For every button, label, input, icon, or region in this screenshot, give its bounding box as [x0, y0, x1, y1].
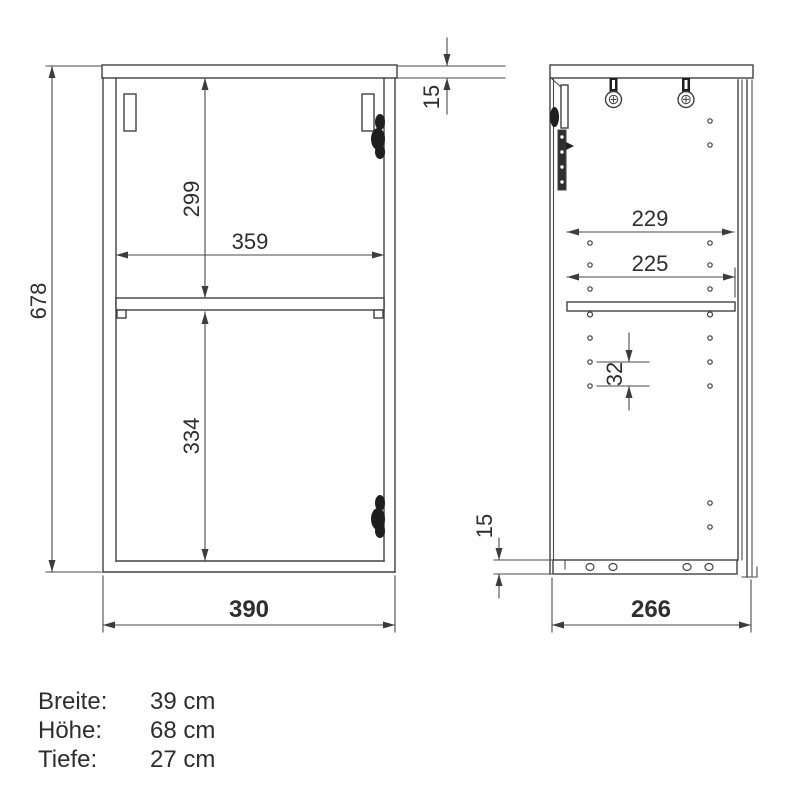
shelf-support-left [117, 310, 126, 318]
dim-label-299: 299 [179, 181, 204, 218]
spec-value-width: 39 cm [150, 687, 215, 716]
arrowhead-down [49, 560, 56, 572]
dim-label-266: 266 [631, 596, 671, 623]
dim-label-334: 334 [179, 418, 204, 455]
dim-side-upper-depth: 229 [567, 206, 734, 236]
spec-row-depth: Tiefe:27 cm [38, 745, 215, 774]
arrowhead-up [444, 78, 451, 90]
drill-hole [708, 501, 712, 505]
dim-label-15-bottom: 15 [472, 514, 497, 538]
dim-side-bottom-thickness: 15 [472, 514, 553, 598]
dim-label-390: 390 [229, 596, 269, 623]
arrowhead-right [739, 622, 751, 629]
rail-slide [561, 85, 568, 128]
spec-label-depth: Tiefe: [38, 745, 150, 774]
arrowhead-down [202, 286, 209, 298]
dim-front-height: 678 [26, 66, 101, 572]
arrowhead-up [202, 78, 209, 90]
dim-label-225: 225 [632, 251, 669, 276]
rail-pointer [566, 142, 574, 150]
drill-hole [708, 384, 712, 388]
rail-screw-hole [560, 180, 563, 183]
wall-hanger-right [678, 78, 694, 108]
hanger-strap-slot [685, 80, 688, 89]
dim-label-359: 359 [232, 229, 269, 254]
drill-hole [708, 119, 712, 123]
shelf-pin [588, 312, 593, 317]
dim-label-15-top: 15 [419, 85, 444, 109]
dim-front-lower-section: 334 [179, 312, 209, 561]
spec-row-height: Höhe:68 cm [38, 716, 215, 745]
back-panel-hook [742, 567, 757, 577]
dim-label-678: 678 [26, 283, 51, 320]
arrowhead-down [626, 350, 633, 362]
drill-hole [708, 143, 712, 147]
arrowhead-down [496, 548, 503, 560]
dim-label-229: 229 [632, 206, 669, 231]
arrowhead-right [722, 229, 734, 236]
spec-row-width: Breite:39 cm [38, 687, 215, 716]
spec-label-height: Höhe: [38, 716, 150, 745]
arrowhead-down [202, 549, 209, 561]
spec-value-depth: 27 cm [150, 745, 215, 774]
hinge-part [375, 114, 385, 130]
drill-hole [588, 241, 592, 245]
drill-hole [708, 263, 712, 267]
hanger-strap-slot [612, 80, 615, 89]
spec-value-height: 68 cm [150, 716, 215, 745]
dim-front-width: 390 [103, 576, 395, 632]
arrowhead-right [372, 252, 384, 259]
drill-hole [708, 287, 712, 291]
dim-front-upper-section: 299 [179, 78, 209, 298]
hinge-plate-left [124, 94, 136, 131]
hinge-part [375, 145, 385, 159]
side-shelf [567, 302, 735, 311]
drill-hole [588, 336, 592, 340]
drill-holes-right-column [708, 119, 712, 529]
arrowhead-left [567, 274, 579, 281]
front-view [102, 65, 397, 572]
arrowhead-left [567, 229, 579, 236]
arrowhead-up [626, 386, 633, 398]
cabinet-dimension-drawing: 678 15 299 359 334 390 [0, 0, 800, 800]
arrowhead-left [103, 622, 115, 629]
side-view [550, 65, 757, 577]
rail-screw-hole [560, 165, 563, 168]
rail-screw-hole [560, 135, 563, 138]
drill-hole [588, 287, 592, 291]
hinge-plate-right [362, 94, 374, 131]
spec-label-width: Breite: [38, 687, 150, 716]
dim-front-inner-width: 359 [116, 229, 384, 259]
shelf-support-right [374, 310, 383, 318]
dim-side-hole-spacing: 32 [597, 333, 649, 410]
front-middle-shelf [116, 298, 384, 310]
arrowhead-left [116, 252, 128, 259]
drill-hole [588, 384, 592, 388]
drill-hole [708, 241, 712, 245]
spec-table: Breite:39 cm Höhe:68 cm Tiefe:27 cm [38, 687, 215, 774]
arrowhead-up [202, 312, 209, 324]
dim-front-top-thickness: 15 [398, 38, 505, 114]
hinge-bottom-right [371, 495, 385, 538]
wall-hanger-left [606, 78, 622, 108]
shelf-pin [708, 312, 713, 317]
side-top-panel [550, 65, 753, 78]
arrowhead-up [496, 574, 503, 586]
arrowhead-down [444, 54, 451, 66]
bottom-screw-hole [683, 564, 691, 571]
rail-screw-hole [560, 150, 563, 153]
drill-hole [708, 336, 712, 340]
drill-hole [708, 360, 712, 364]
arrowhead-up [49, 66, 56, 78]
arrowhead-right [383, 622, 395, 629]
bottom-screw-hole [586, 564, 594, 571]
bottom-screw-hole [609, 564, 617, 571]
hinge-arm [550, 107, 559, 127]
bottom-screw-hole [705, 564, 713, 571]
drill-hole [588, 360, 592, 364]
front-top-panel [102, 65, 397, 78]
drill-hole [708, 525, 712, 529]
technical-drawing-page: 678 15 299 359 334 390 [0, 0, 800, 800]
arrowhead-left [552, 622, 564, 629]
dim-side-depth: 266 [552, 578, 751, 632]
dim-label-32: 32 [602, 362, 627, 386]
drill-hole [588, 263, 592, 267]
hinge-part [375, 524, 385, 538]
arrowhead-right [723, 274, 735, 281]
